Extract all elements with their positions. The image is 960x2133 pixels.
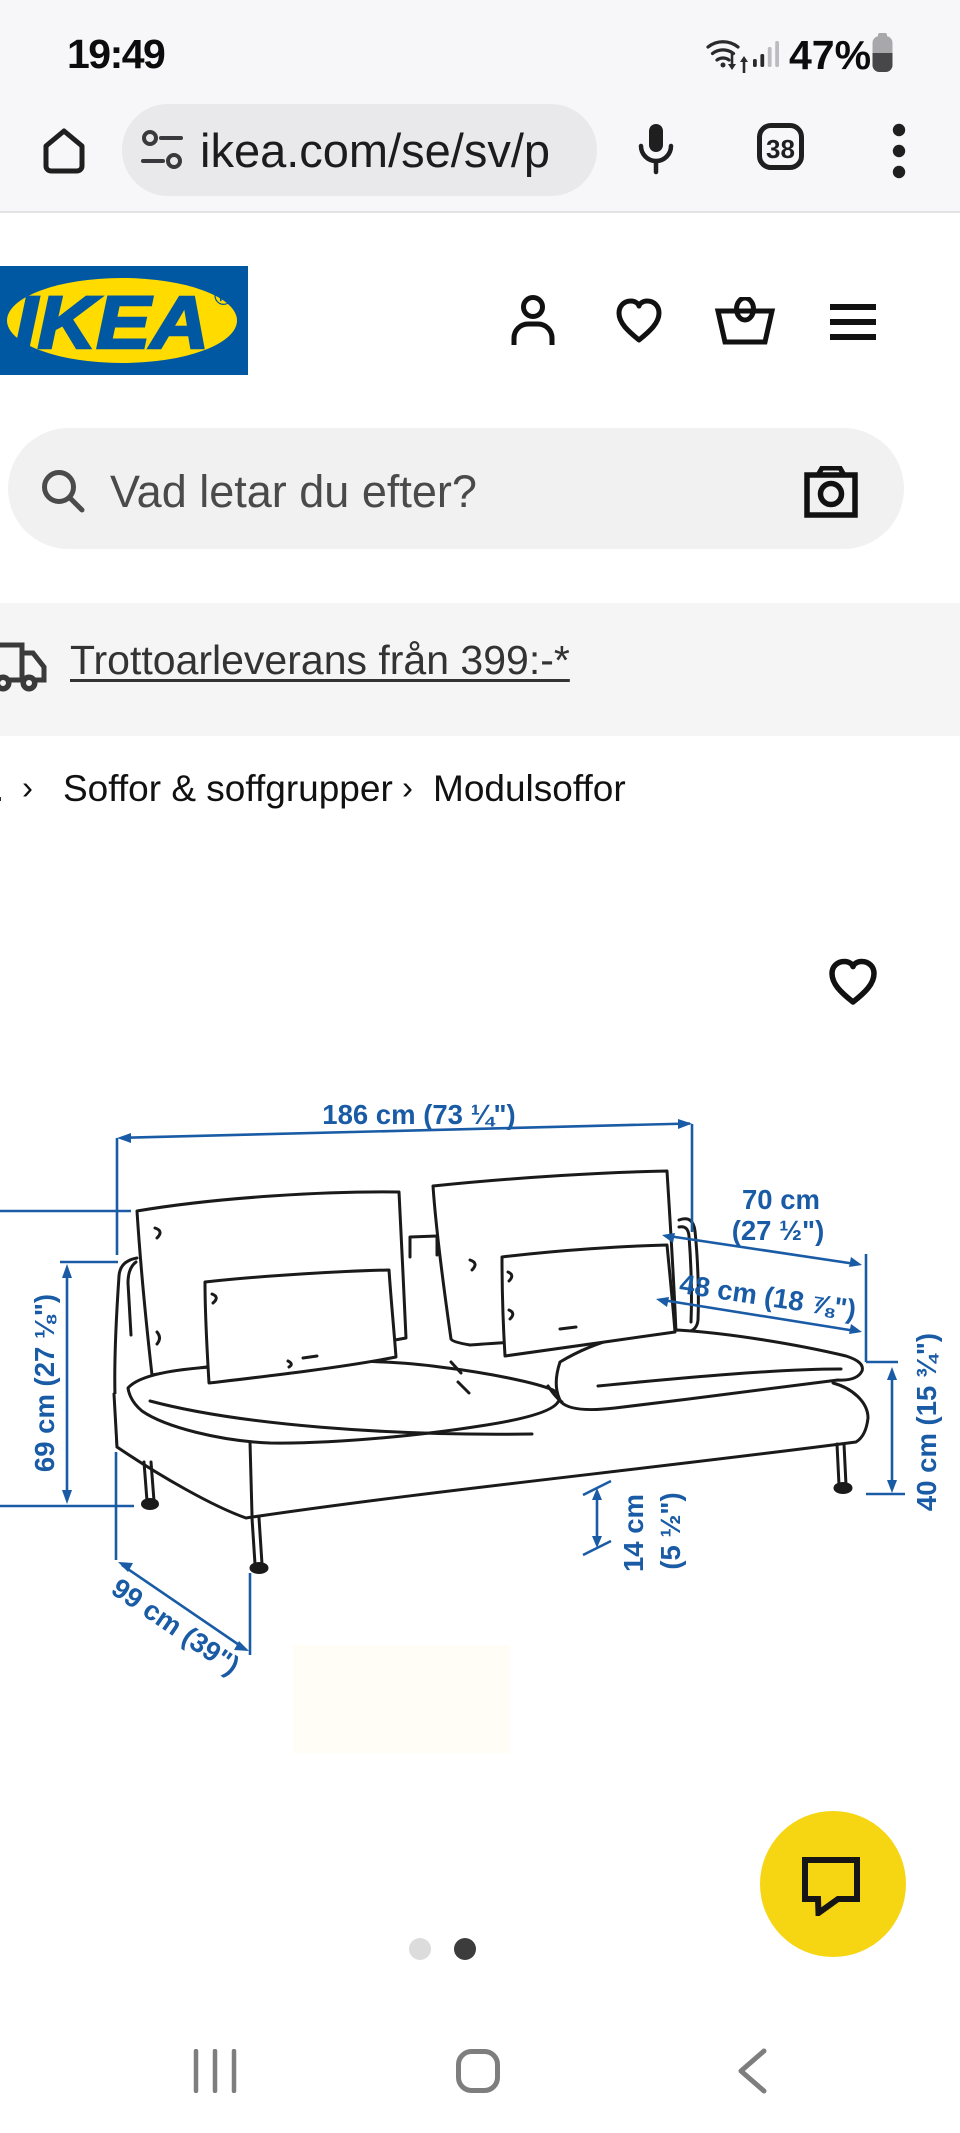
svg-text:(27 ½"): (27 ½")	[732, 1215, 825, 1246]
svg-text:14 cm: 14 cm	[618, 1494, 649, 1572]
svg-text:®: ®	[214, 281, 233, 311]
svg-text:40 cm (15 ¾"): 40 cm (15 ¾")	[911, 1333, 942, 1511]
svg-text:70 cm: 70 cm	[742, 1184, 820, 1215]
svg-text:99 cm (39"): 99 cm (39")	[106, 1572, 245, 1681]
svg-text:(5 ½"): (5 ½")	[655, 1492, 686, 1569]
svg-text:69 cm (27 ⅛"): 69 cm (27 ⅛")	[29, 1294, 60, 1472]
svg-text:IKEA: IKEA	[15, 281, 209, 364]
svg-text:186 cm (73 ¼"): 186 cm (73 ¼")	[322, 1099, 515, 1130]
